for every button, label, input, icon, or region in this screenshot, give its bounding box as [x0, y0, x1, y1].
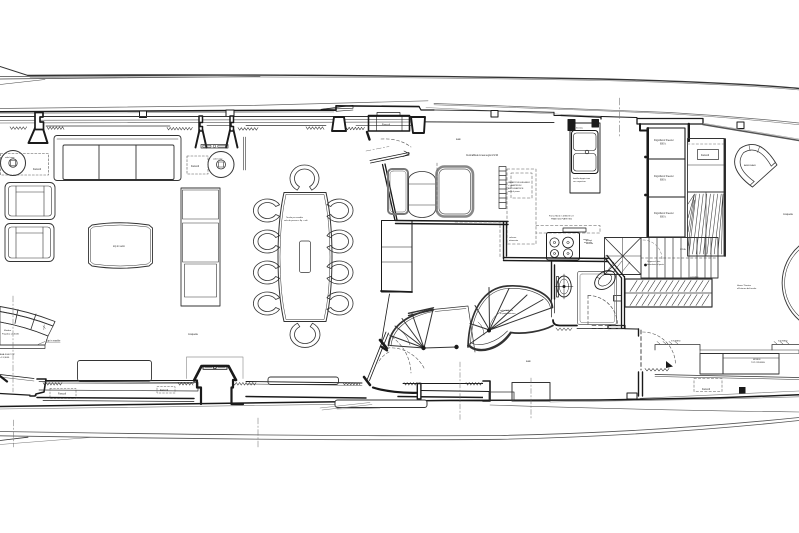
svg-text:teak: teak — [526, 360, 531, 363]
svg-text:teak: teak — [456, 138, 461, 141]
svg-text:lavanderia al ponte: lavanderia al ponte — [647, 263, 665, 266]
svg-text:con copertura: con copertura — [573, 180, 587, 183]
svg-text:STOWED: STOWED — [671, 341, 681, 343]
svg-text:sotto il piano: sotto il piano — [508, 190, 521, 193]
svg-text:corridoio: corridoio — [690, 276, 699, 279]
svg-text:+ LAVATRICE/: + LAVATRICE/ — [508, 184, 522, 187]
svg-text:moquette: moquette — [783, 213, 794, 216]
svg-text:sala da pranzo x 8p + wifi: sala da pranzo x 8p + wifi — [284, 219, 308, 222]
svg-text:Minibar: Minibar — [4, 329, 11, 332]
svg-text:moquette: moquette — [188, 333, 199, 336]
svg-text:Frigobar art.3046: Frigobar art.3046 — [2, 333, 20, 336]
svg-text:Fancoil: Fancoil — [191, 165, 200, 168]
svg-text:STOWED: STOWED — [778, 341, 788, 343]
svg-text:side lamp: side lamp — [213, 159, 223, 161]
svg-text:LAVASTOVIGLIE ASKO: LAVASTOVIGLIE ASKO — [508, 181, 531, 184]
svg-text:Tavolo per vendita: Tavolo per vendita — [286, 216, 304, 219]
svg-text:Fancoil: Fancoil — [33, 168, 42, 171]
svg-text:STIVA: STIVA — [680, 248, 686, 251]
svg-text:Fancoil: Fancoil — [701, 154, 710, 157]
svg-text:serveria: serveria — [586, 243, 594, 245]
svg-text:Dispensa/ stiro: Dispensa/ stiro — [647, 260, 661, 263]
svg-text:PIANI 500 PIATE 900: PIANI 500 PIATE 900 — [551, 218, 573, 221]
svg-text:600 lt.: 600 lt. — [660, 143, 667, 146]
svg-text:salita/ discesa: salita/ discesa — [500, 309, 514, 312]
svg-text:top in vetro: top in vetro — [113, 245, 125, 248]
svg-text:Frigorifero/ Freezer: Frigorifero/ Freezer — [654, 212, 674, 215]
svg-text:al ponte inferiore: al ponte inferiore — [500, 312, 516, 315]
svg-text:ASCIUGATRICE: ASCIUGATRICE — [508, 187, 524, 190]
svg-text:Forno Miele n 4900 B CO: Forno Miele n 4900 B CO — [549, 215, 574, 218]
svg-text:finestra: finestra — [576, 127, 584, 130]
svg-text:TOP OPENING: TOP OPENING — [751, 362, 765, 364]
svg-text:lavello doppio inox: lavello doppio inox — [573, 178, 591, 180]
svg-text:Frigorifero/ Freezer: Frigorifero/ Freezer — [654, 175, 674, 178]
svg-text:+13,3046: +13,3046 — [0, 357, 10, 359]
svg-text:600 lt.: 600 lt. — [660, 179, 667, 182]
svg-text:all'interno del tavolo: all'interno del tavolo — [737, 287, 757, 290]
svg-text:colonne: colonne — [509, 237, 517, 239]
svg-text:pantry/: pantry/ — [586, 239, 593, 242]
svg-text:Frigorifero/ Freezer: Frigorifero/ Freezer — [654, 139, 674, 142]
svg-text:Fancoil: Fancoil — [160, 389, 169, 392]
svg-text:Top in marble: Top in marble — [46, 340, 61, 343]
svg-text:side lamp: side lamp — [5, 157, 15, 159]
svg-text:ARMCHAIR: ARMCHAIR — [744, 164, 756, 167]
svg-text:Fancoil: Fancoil — [702, 388, 711, 391]
svg-text:attrezzate: attrezzate — [509, 239, 519, 242]
svg-text:MOBILE: MOBILE — [753, 359, 761, 361]
svg-text:Fancoil: Fancoil — [382, 124, 391, 127]
svg-text:CucinaMiele Linea segisi LS 90: CucinaMiele Linea segisi LS 90 — [466, 155, 499, 157]
svg-text:Home Theatre: Home Theatre — [737, 284, 752, 287]
svg-text:600 lt.: 600 lt. — [660, 216, 667, 219]
svg-text:Fancoil: Fancoil — [58, 393, 67, 396]
